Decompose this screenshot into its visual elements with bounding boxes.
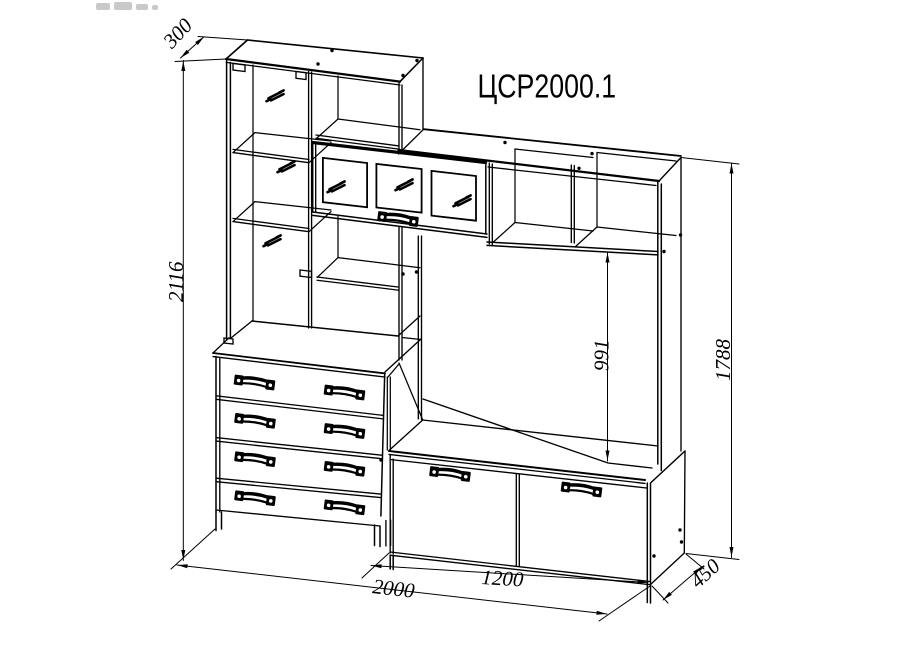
svg-text:1200: 1200	[481, 565, 525, 592]
svg-text:991: 991	[590, 340, 614, 372]
svg-text:2116: 2116	[164, 261, 188, 302]
svg-text:1788: 1788	[711, 339, 735, 382]
svg-text:ЦСР2000.1: ЦСР2000.1	[478, 69, 617, 105]
svg-text:450: 450	[685, 553, 725, 592]
svg-text:2000: 2000	[371, 574, 416, 603]
